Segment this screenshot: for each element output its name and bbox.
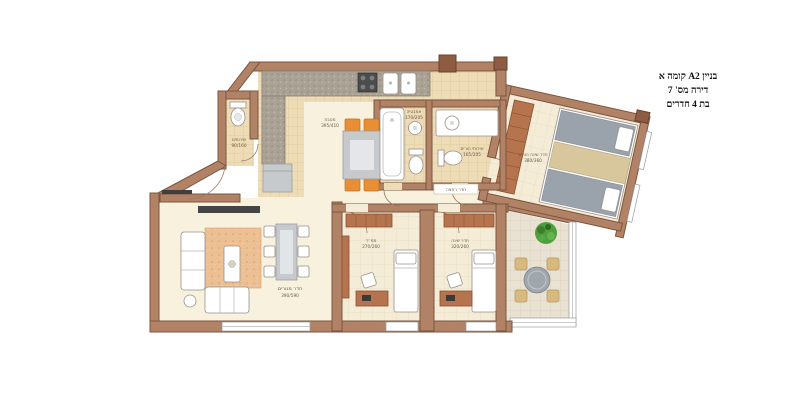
master-bedroom-dims: 380/360	[524, 158, 542, 164]
guest-wc-dims: 90/160	[231, 143, 246, 149]
floor-plan-page: בניין A2 קומה א דירה מס' 7 בת 4 חדרים	[0, 0, 800, 400]
parents-wc-dims: 165/205	[463, 152, 481, 158]
refrigerator	[263, 164, 292, 192]
master-bedroom-label: חדר שינה הורים	[518, 153, 547, 158]
coffee-table	[224, 246, 240, 282]
wall-bedroom-terrace	[496, 204, 506, 331]
side-table	[184, 295, 196, 307]
safe-room-window	[386, 322, 418, 331]
wall-living-top	[160, 194, 240, 202]
tv-cabinet	[198, 206, 260, 213]
vanity-counter	[436, 110, 498, 136]
wardrobe	[346, 214, 392, 227]
dining-chair	[264, 246, 275, 257]
kitchen-chair	[364, 179, 379, 191]
dining-set	[264, 224, 309, 280]
kitchen-chair	[345, 119, 360, 131]
toilet	[409, 149, 423, 174]
wall-bottom	[150, 321, 512, 332]
single-bed	[394, 250, 418, 312]
door-gap	[346, 204, 368, 212]
wall-living-bedroom	[332, 202, 342, 331]
toilet	[438, 150, 462, 166]
title-line-building: בניין A2 קומה א	[636, 70, 740, 84]
washbasin	[409, 122, 422, 135]
parents-wc-label: שירותי הורים	[461, 147, 484, 152]
kitchen-chair	[364, 119, 379, 131]
pillow	[474, 253, 494, 264]
outdoor-chair	[547, 258, 559, 270]
wall-between-bedrooms	[420, 210, 434, 331]
outdoor-chair	[547, 290, 559, 302]
bathtub	[380, 108, 404, 180]
dining-chair	[298, 226, 309, 237]
safe-room-dims: 270/260	[362, 244, 380, 250]
title-block: בניין A2 קומה א דירה מס' 7 בת 4 חדרים	[636, 70, 740, 112]
desk-lamp	[362, 295, 371, 301]
safe-room-label: ממ״ד	[366, 239, 377, 244]
bathroom-dims: 170/205	[405, 115, 423, 121]
kitchen-label: מטבח	[325, 118, 336, 123]
title-line-rooms: בת 4 חדרים	[636, 98, 740, 112]
guest-wc-label: שירותים	[232, 138, 246, 143]
wall-wc-left	[218, 91, 226, 169]
column	[494, 57, 507, 70]
outdoor-chair	[515, 290, 527, 302]
kitchen-dims: 395/410	[321, 123, 339, 129]
dining-chair	[298, 246, 309, 257]
wall-bath-right	[500, 100, 506, 190]
bathroom-tag: חדר רחצה	[434, 184, 478, 194]
bedroom-dims: 320/260	[451, 244, 469, 250]
wardrobe	[444, 214, 494, 227]
living-room-dims: 390/590	[281, 293, 299, 299]
kitchen-counter-side	[262, 96, 285, 164]
living-room-label: חדר מגורים	[278, 286, 303, 292]
svg-text:חדר רחצה: חדר רחצה	[446, 188, 466, 193]
toilet	[230, 102, 246, 126]
gas-stove	[358, 73, 377, 92]
wall-bath-top	[374, 100, 506, 107]
dining-chair	[264, 226, 275, 237]
title-line-apartment: דירה מס' 7	[636, 84, 740, 98]
wall-left	[150, 193, 159, 332]
dining-chair	[264, 266, 275, 277]
side-cabinet	[342, 236, 349, 298]
door-gap	[438, 204, 460, 212]
column	[439, 55, 456, 72]
bathroom-label: אמבטיה	[407, 110, 422, 115]
single-bed	[472, 250, 496, 312]
plant	[535, 222, 557, 244]
wall-top	[250, 62, 506, 71]
dining-chair	[298, 266, 309, 277]
outdoor-chair	[515, 258, 527, 270]
wall-wc-right	[250, 91, 258, 139]
shelf	[162, 190, 192, 194]
desk-lamp	[446, 295, 455, 301]
wall-bath-divider	[426, 100, 432, 190]
pillow	[396, 253, 416, 264]
kitchen-chair	[345, 179, 360, 191]
bedroom-label: חדר שינה	[451, 239, 469, 244]
bedroom-window	[466, 322, 496, 331]
wall-top-left-diagonal	[226, 62, 260, 93]
floor-plan: מטבח 395/410 שירותים 90/160	[0, 0, 800, 400]
door-gap	[384, 183, 402, 190]
